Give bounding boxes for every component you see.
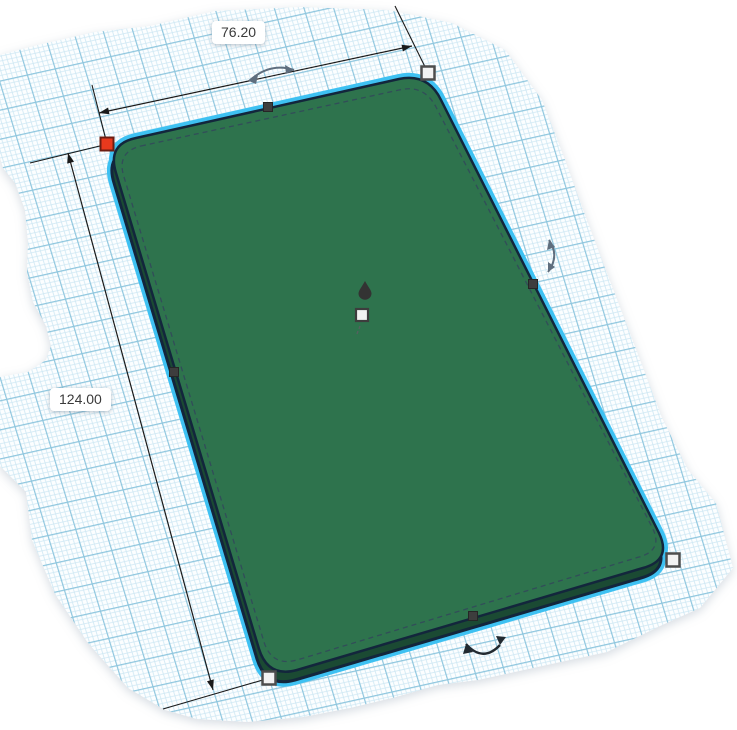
scale-handle-corner-top-right[interactable] bbox=[422, 67, 435, 80]
width-dimension-label[interactable]: 76.20 bbox=[212, 21, 265, 44]
cad-viewport: 76.20 124.00 bbox=[0, 0, 737, 730]
scale-handle-corner-bottom-left[interactable] bbox=[263, 672, 276, 685]
scale-handle-right-mid[interactable] bbox=[529, 280, 538, 289]
scale-handle-left-mid[interactable] bbox=[170, 368, 179, 377]
scale-handle-bottom-mid[interactable] bbox=[469, 612, 478, 621]
height-dimension-label[interactable]: 124.00 bbox=[50, 388, 111, 411]
center-square-handle[interactable] bbox=[356, 309, 368, 321]
scene-canvas bbox=[0, 0, 737, 730]
scale-handle-corner-top-left-active[interactable] bbox=[101, 138, 114, 151]
scale-handle-top-mid[interactable] bbox=[264, 103, 273, 112]
scale-handle-corner-bottom-right[interactable] bbox=[667, 554, 680, 567]
